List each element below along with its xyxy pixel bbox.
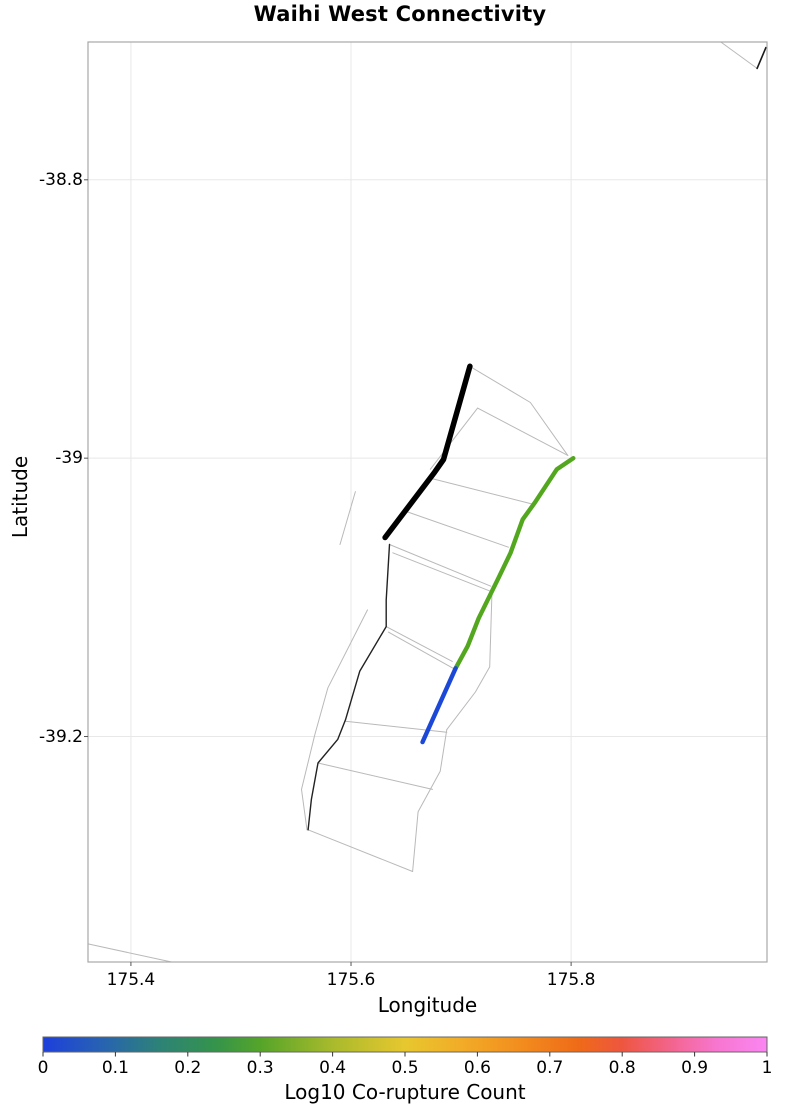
map-figure <box>0 0 800 1118</box>
x-axis-label: Longitude <box>88 993 767 1017</box>
colorbar-tick-label: 0 <box>13 1058 73 1078</box>
fault-section-outlines <box>721 42 757 68</box>
waihi-west-fault-trace-thick-black <box>385 366 470 537</box>
fault-section-outlines <box>386 627 452 662</box>
fault-section-outlines <box>388 632 455 670</box>
fault-section-outlines <box>308 830 413 872</box>
colorbar-tick-label: 0.5 <box>375 1058 435 1078</box>
fault-section-outlines <box>318 763 433 789</box>
y-tick-label: -38.8 <box>13 170 83 190</box>
colorbar-label: Log10 Co-rupture Count <box>43 1080 767 1104</box>
colorbar-tick-label: 0.6 <box>447 1058 507 1078</box>
y-axis-label: Latitude <box>8 456 32 538</box>
colorbar-tick-label: 0.8 <box>592 1058 652 1078</box>
colorbar-tick-label: 0.2 <box>158 1058 218 1078</box>
corner-fault-trace <box>757 48 766 69</box>
co-rupture-trace-green <box>456 458 574 668</box>
colorbar-tick-label: 0.7 <box>520 1058 580 1078</box>
colorbar-tick-label: 1 <box>737 1058 797 1078</box>
x-tick-label: 175.6 <box>306 970 396 990</box>
south-fault-trace-thin-black <box>308 545 389 830</box>
x-tick-label: 175.4 <box>86 970 176 990</box>
y-tick-label: -39 <box>13 448 83 468</box>
page-title: Waihi West Connectivity <box>0 2 800 26</box>
fault-section-outlines <box>413 730 447 872</box>
colorbar-tick-label: 0.9 <box>665 1058 725 1078</box>
fault-section-outlines <box>478 408 568 455</box>
fault-section-outlines <box>447 595 492 730</box>
colorbar-tick-label: 0.1 <box>85 1058 145 1078</box>
fault-section-outlines <box>88 944 172 962</box>
fault-section-outlines <box>340 492 355 545</box>
fault-section-outlines <box>472 368 568 456</box>
fault-section-outlines <box>405 511 509 547</box>
colorbar-tick-label: 0.3 <box>230 1058 290 1078</box>
fault-section-outlines <box>428 478 532 505</box>
fault-section-outlines <box>393 553 492 592</box>
fault-section-outlines <box>390 545 491 587</box>
colorbar-tick-label: 0.4 <box>303 1058 363 1078</box>
x-tick-label: 175.8 <box>526 970 616 990</box>
colorbar <box>43 1037 767 1052</box>
y-tick-label: -39.2 <box>13 727 83 747</box>
